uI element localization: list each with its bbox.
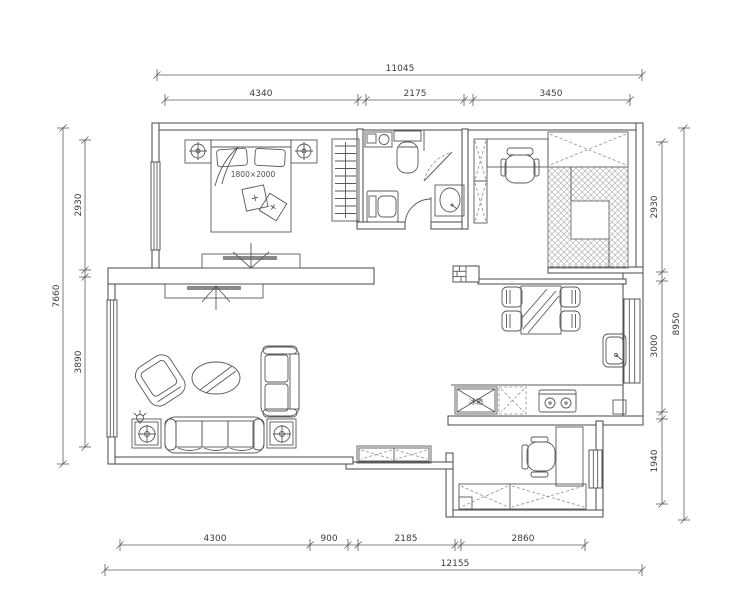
bedroom: 1800×2000: [185, 139, 359, 268]
bathroom: [365, 131, 464, 225]
dimension-bottom: 4300 900 2185 2860 12155: [102, 534, 646, 576]
wall-bath-right: [462, 129, 468, 229]
dim-bottom-seg3: 2185: [395, 534, 418, 544]
fridge: 冰箱: [455, 387, 497, 414]
bed-cushion: [242, 185, 268, 211]
bathroom-door: [405, 197, 431, 225]
side-table-left: [132, 419, 161, 448]
side-cabinet: [474, 181, 487, 223]
vanity-sink: [435, 185, 464, 216]
dining-chair: [502, 311, 522, 331]
kitchen: 冰箱: [451, 385, 626, 414]
wall-bedroom-living-divider: [108, 268, 374, 284]
hall-column: [453, 266, 479, 282]
wall-top: [152, 123, 643, 130]
dim-top-seg3: 3450: [540, 89, 563, 99]
wall-bottom-right: [446, 510, 603, 517]
dim-top-seg1: 4340: [250, 89, 273, 99]
living-room-window: [107, 300, 117, 437]
toilet: [394, 131, 421, 173]
dimension-left: 7660 2930 3890: [52, 125, 91, 468]
side-table-right: [267, 419, 296, 448]
bed-size-label: 1800×2000: [231, 170, 276, 179]
coffee-table: [192, 362, 240, 394]
nightstand-right: [291, 140, 317, 163]
shower-door: [424, 152, 452, 181]
kitchen-sink: [603, 334, 626, 367]
dim-bottom-seg4: 2860: [512, 534, 535, 544]
prep-area: [499, 387, 526, 414]
dining-table: [521, 286, 561, 334]
floor-plan-image: 1800×2000: [0, 0, 740, 600]
side-cabinet: [474, 139, 487, 181]
dining-chair: [560, 311, 580, 331]
dim-right-overall: 8950: [672, 312, 682, 335]
dim-bottom-seg1: 4300: [204, 534, 227, 544]
gas-stove: [539, 390, 576, 412]
tv-screen: [223, 256, 277, 260]
bedroom-2: [459, 427, 586, 509]
wardrobe: [332, 139, 359, 221]
dim-top-seg2: 2175: [404, 89, 427, 99]
wall-kitchen-bottom: [448, 416, 643, 425]
closet-2: [459, 484, 586, 509]
dimension-top: 11045 4340 2175 3450: [154, 64, 646, 106]
loveseat: [261, 346, 299, 417]
sofa-three-seat: [165, 417, 264, 453]
dim-left-seg2: 3890: [74, 350, 84, 373]
dim-top-overall: 11045: [386, 64, 415, 74]
tatami-platform: [548, 167, 628, 268]
desk-chair: [501, 148, 539, 183]
bed: 1800×2000: [211, 140, 291, 232]
wall-dining-top: [478, 279, 626, 284]
entry: [357, 446, 431, 463]
corner-sink: [365, 132, 392, 147]
dim-right-seg3: 1940: [650, 449, 660, 472]
bedroom-window: [151, 162, 160, 250]
dim-left-overall: 7660: [52, 284, 62, 307]
fridge-label: 冰箱: [469, 397, 483, 406]
armchair: [131, 351, 189, 411]
nightstand-left: [185, 140, 211, 163]
dining-chair: [560, 287, 580, 307]
dining-chair: [502, 287, 522, 307]
dim-right-seg1: 2930: [650, 195, 660, 218]
floor-plan: 1800×2000: [0, 0, 740, 600]
bedroom2-window: [589, 450, 602, 488]
dimension-right: 2930 3000 1940 8950: [650, 125, 690, 524]
dim-left-seg1: 2930: [74, 193, 84, 216]
dim-bottom-seg2: 900: [320, 534, 337, 544]
study-room: [474, 132, 628, 268]
pillow: [255, 148, 286, 167]
desk-chair-2: [522, 437, 555, 477]
dining-area: [502, 286, 626, 367]
wall-right-upper: [636, 123, 643, 274]
tv-cabinet-living: [165, 284, 263, 310]
washing-machine: [367, 191, 398, 222]
tv-cabinet-bedroom: [202, 243, 300, 268]
wall-living-bottom: [108, 457, 353, 464]
bed-cushion: [259, 193, 287, 221]
closet-top: [548, 132, 628, 167]
desk-2: [556, 427, 583, 486]
tv-position-mark: [233, 243, 269, 268]
living-room: [131, 284, 299, 453]
dim-right-seg2: 3000: [650, 334, 660, 357]
wall-bedroom-bath-divider: [357, 129, 363, 227]
dim-bottom-overall: 12155: [441, 559, 470, 569]
shoe-cabinet: [357, 446, 431, 463]
wall-bath-bottom-left: [357, 222, 405, 229]
